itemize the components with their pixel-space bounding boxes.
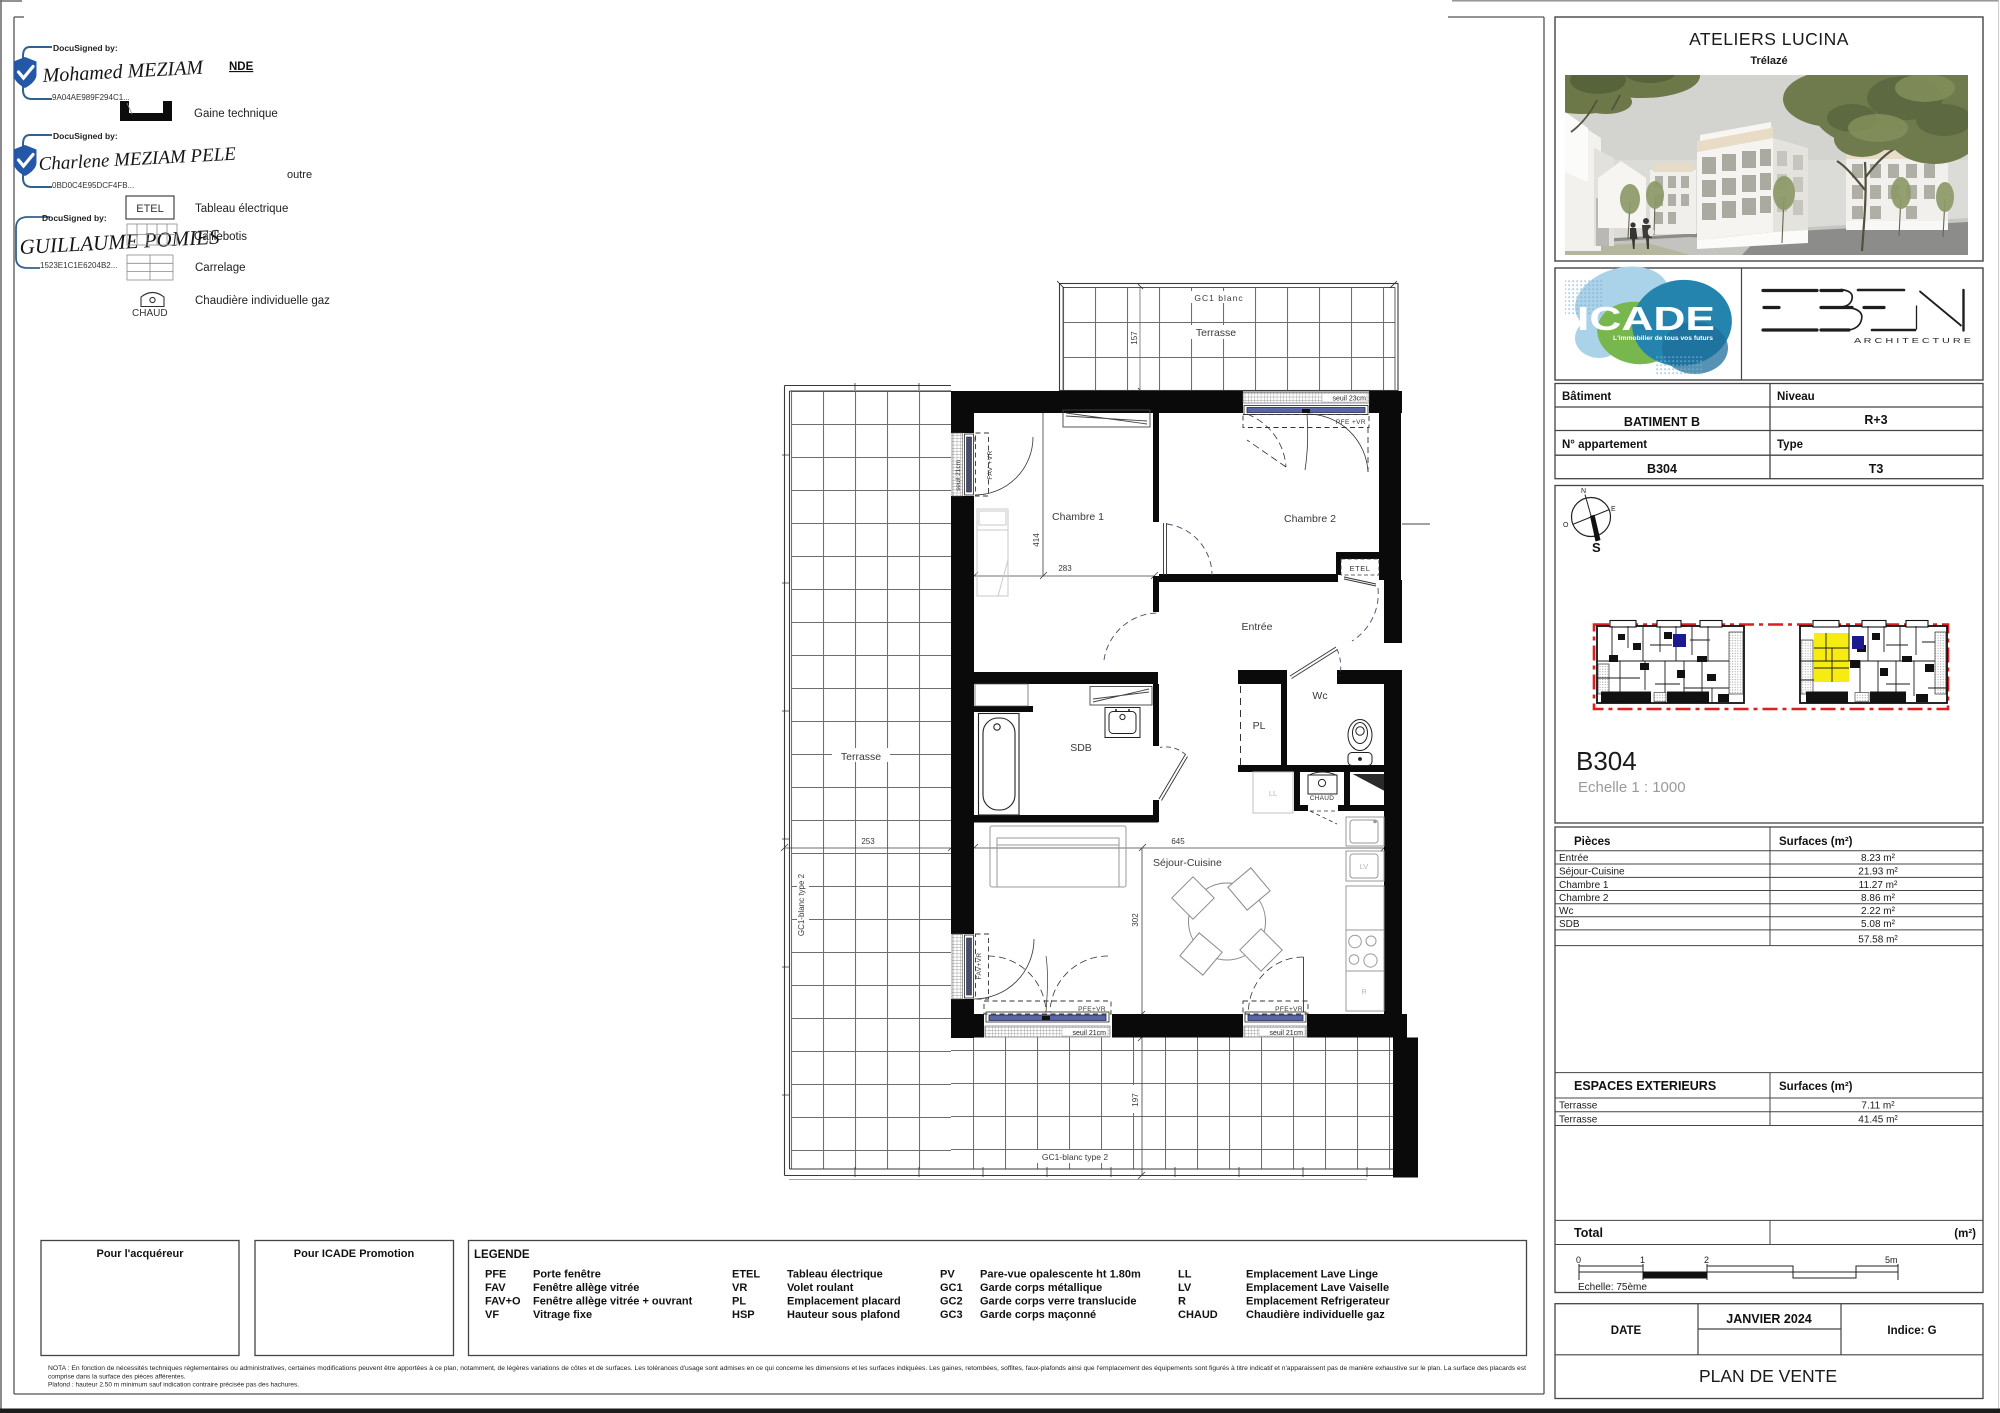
- svg-text:Séjour-Cuisine: Séjour-Cuisine: [1559, 867, 1625, 878]
- svg-text:Emplacement Refrigerateur: Emplacement Refrigerateur: [1246, 1296, 1390, 1308]
- svg-text:LV: LV: [1178, 1282, 1192, 1294]
- svg-text:DocuSigned by:: DocuSigned by:: [42, 213, 107, 223]
- svg-text:Terrasse: Terrasse: [1196, 327, 1236, 339]
- svg-text:ICADE: ICADE: [1577, 300, 1715, 337]
- svg-text:Entrée: Entrée: [1242, 621, 1273, 633]
- svg-text:Indice: G: Indice: G: [1887, 1325, 1936, 1337]
- svg-text:FAV +VR: FAV +VR: [987, 450, 994, 479]
- svg-text:PFE+VR: PFE+VR: [1078, 1006, 1106, 1013]
- svg-text:0BD0C4E95DCF4FB...: 0BD0C4E95DCF4FB...: [52, 181, 134, 190]
- svg-text:PV: PV: [940, 1269, 955, 1281]
- svg-text:8.86 m²: 8.86 m²: [1861, 893, 1896, 904]
- svg-text:DocuSigned by:: DocuSigned by:: [53, 43, 118, 53]
- svg-text:PFE +VR: PFE +VR: [1336, 419, 1366, 426]
- svg-text:LV: LV: [1360, 862, 1369, 871]
- svg-text:GC1: GC1: [940, 1282, 963, 1294]
- svg-text:R+3: R+3: [1864, 413, 1887, 427]
- svg-text:Trélazé: Trélazé: [1750, 55, 1787, 67]
- svg-text:DocuSigned by:: DocuSigned by:: [53, 131, 118, 141]
- svg-text:Pour l'acquéreur: Pour l'acquéreur: [97, 1248, 185, 1260]
- svg-text:PL: PL: [1253, 720, 1266, 732]
- svg-text:T3: T3: [1869, 462, 1884, 476]
- svg-text:Pour ICADE Promotion: Pour ICADE Promotion: [294, 1248, 415, 1260]
- svg-text:9A04AE989F294C1...: 9A04AE989F294C1...: [52, 93, 130, 102]
- svg-text:GC2: GC2: [940, 1296, 963, 1308]
- svg-text:ETEL: ETEL: [732, 1269, 760, 1281]
- svg-text:seuil 21cm: seuil 21cm: [1270, 1030, 1304, 1037]
- svg-text:GC1-blanc type 2: GC1-blanc type 2: [1042, 1152, 1108, 1162]
- svg-text:HSP: HSP: [732, 1309, 755, 1321]
- svg-text:Wc: Wc: [1559, 906, 1573, 917]
- svg-text:7.11 m²: 7.11 m²: [1861, 1101, 1895, 1112]
- svg-text:PL: PL: [732, 1296, 746, 1308]
- svg-text:Carrelage: Carrelage: [195, 262, 246, 274]
- svg-text:VR: VR: [732, 1282, 747, 1294]
- svg-text:JANVIER 2024: JANVIER 2024: [1726, 1312, 1812, 1326]
- svg-text:R: R: [1178, 1296, 1186, 1308]
- svg-text:414: 414: [1032, 533, 1041, 547]
- svg-text:41.45 m²: 41.45 m²: [1858, 1114, 1898, 1125]
- svg-text:BATIMENT B: BATIMENT B: [1624, 415, 1700, 429]
- svg-text:L'immobilier de tous vos futur: L'immobilier de tous vos futurs: [1613, 335, 1713, 342]
- svg-text:N: N: [1581, 488, 1586, 495]
- svg-text:Fenêtre allège vitrée: Fenêtre allège vitrée: [533, 1282, 639, 1294]
- svg-text:ESPACES EXTERIEURS: ESPACES EXTERIEURS: [1574, 1079, 1716, 1093]
- svg-text:FAV: FAV: [485, 1282, 506, 1294]
- svg-text:LEGENDE: LEGENDE: [474, 1249, 530, 1261]
- svg-text:PLAN DE VENTE: PLAN DE VENTE: [1699, 1366, 1837, 1386]
- svg-text:57.58 m²: 57.58 m²: [1858, 935, 1898, 946]
- svg-text:21.93 m²: 21.93 m²: [1858, 867, 1898, 878]
- svg-text:Tableau électrique: Tableau électrique: [787, 1269, 883, 1281]
- svg-text:5m: 5m: [1885, 1255, 1898, 1265]
- svg-text:Emplacement placard: Emplacement placard: [787, 1296, 901, 1308]
- svg-text:B304: B304: [1576, 746, 1637, 776]
- svg-text:11.27 m²: 11.27 m²: [1859, 880, 1898, 891]
- svg-text:N° appartement: N° appartement: [1562, 439, 1647, 451]
- svg-text:Vitrage fixe: Vitrage fixe: [533, 1309, 592, 1321]
- svg-text:Chambre 1: Chambre 1: [1052, 511, 1104, 523]
- svg-text:Wc: Wc: [1312, 690, 1327, 702]
- svg-text:CHAUD: CHAUD: [1178, 1309, 1218, 1321]
- svg-text:CHAUD: CHAUD: [132, 308, 168, 319]
- svg-text:PFE+VR: PFE+VR: [1275, 1006, 1303, 1013]
- svg-text:157: 157: [1130, 331, 1139, 345]
- svg-text:outre: outre: [287, 169, 312, 181]
- svg-text:Echelle 1 : 1000: Echelle 1 : 1000: [1578, 779, 1686, 796]
- svg-text:B304: B304: [1647, 462, 1677, 476]
- svg-text:SDB: SDB: [1559, 919, 1580, 930]
- svg-text:seuil 23cm: seuil 23cm: [1333, 396, 1367, 403]
- svg-text:Entrée: Entrée: [1559, 853, 1589, 864]
- svg-text:PFE: PFE: [485, 1269, 506, 1281]
- svg-text:(m²): (m²): [1954, 1228, 1976, 1240]
- svg-text:Terrasse: Terrasse: [1559, 1101, 1598, 1112]
- svg-text:Emplacement Lave Linge: Emplacement Lave Linge: [1246, 1269, 1378, 1281]
- svg-text:seuil 21cm: seuil 21cm: [1073, 1030, 1107, 1037]
- svg-text:Hauteur sous plafond: Hauteur sous plafond: [787, 1309, 900, 1321]
- svg-text:Terrasse: Terrasse: [1559, 1114, 1598, 1125]
- svg-text:2.22 m²: 2.22 m²: [1861, 906, 1896, 917]
- svg-text:Pièces: Pièces: [1574, 836, 1610, 848]
- svg-text:Surfaces (m²): Surfaces (m²): [1779, 836, 1853, 848]
- svg-text:Porte fenêtre: Porte fenêtre: [533, 1269, 601, 1281]
- svg-text:1: 1: [1640, 1255, 1645, 1265]
- svg-text:Chaudière individuelle gaz: Chaudière individuelle gaz: [195, 295, 330, 307]
- svg-text:197: 197: [1131, 1093, 1140, 1107]
- svg-text:302: 302: [1131, 913, 1140, 927]
- svg-text:8.23 m²: 8.23 m²: [1861, 853, 1896, 864]
- svg-text:283: 283: [1058, 564, 1072, 573]
- svg-text:ETEL: ETEL: [136, 203, 164, 215]
- svg-text:O: O: [1563, 522, 1569, 529]
- svg-text:GC1 blanc: GC1 blanc: [1194, 293, 1243, 303]
- svg-text:Chambre 2: Chambre 2: [1559, 893, 1609, 904]
- svg-text:Chaudière individuelle gaz: Chaudière individuelle gaz: [1246, 1309, 1385, 1321]
- svg-text:5.08 m²: 5.08 m²: [1861, 919, 1896, 930]
- svg-text:VF: VF: [485, 1309, 499, 1321]
- svg-text:Séjour-Cuisine: Séjour-Cuisine: [1153, 857, 1222, 869]
- svg-text:2: 2: [1704, 1255, 1709, 1265]
- svg-text:Tableau électrique: Tableau électrique: [195, 203, 288, 215]
- svg-text:DATE: DATE: [1611, 1325, 1642, 1337]
- svg-text:Caillebotis: Caillebotis: [194, 231, 247, 243]
- svg-text:Chambre 2: Chambre 2: [1284, 513, 1336, 525]
- svg-text:comprise dans la surface des p: comprise dans la surface des pièces affé…: [48, 1374, 186, 1381]
- svg-text:Plafond : hauteur 2.50 m mini: Plafond : hauteur 2.50 m minimum sauf in…: [48, 1382, 299, 1389]
- svg-text:S: S: [1592, 540, 1601, 555]
- svg-text:Chambre 1: Chambre 1: [1559, 880, 1609, 891]
- svg-text:645: 645: [1171, 837, 1185, 846]
- svg-text:E: E: [1611, 506, 1616, 513]
- svg-text:Gaine technique: Gaine technique: [194, 108, 278, 120]
- svg-text:Garde corps maçonné: Garde corps maçonné: [980, 1309, 1096, 1321]
- svg-text:Terrasse: Terrasse: [841, 751, 881, 763]
- svg-text:Emplacement Lave Vaiselle: Emplacement Lave Vaiselle: [1246, 1282, 1389, 1294]
- svg-text:Garde corps métallique: Garde corps métallique: [980, 1282, 1102, 1294]
- svg-text:FAV+O: FAV+O: [485, 1296, 521, 1308]
- svg-text:NOTA : En fonction de nécessit: NOTA : En fonction de nécessités techniq…: [48, 1365, 1526, 1372]
- svg-text:Bâtiment: Bâtiment: [1562, 391, 1611, 403]
- svg-text:253: 253: [861, 837, 875, 846]
- svg-text:GC3: GC3: [940, 1309, 963, 1321]
- svg-text:FAV+VR: FAV+VR: [976, 952, 983, 979]
- svg-text:A R C H I T E C T U R E: A R C H I T E C T U R E: [1854, 336, 1971, 345]
- svg-text:SDB: SDB: [1070, 742, 1092, 754]
- svg-text:CHAUD: CHAUD: [1310, 795, 1335, 802]
- svg-text:Echelle: 75ème: Echelle: 75ème: [1578, 1282, 1647, 1293]
- svg-text:R: R: [1361, 989, 1366, 996]
- svg-text:ATELIERS LUCINA: ATELIERS LUCINA: [1689, 29, 1849, 49]
- svg-text:Total: Total: [1574, 1226, 1603, 1240]
- svg-text:ETEL: ETEL: [1350, 564, 1371, 573]
- svg-text:GC1-blanc type 2: GC1-blanc type 2: [797, 873, 806, 936]
- svg-text:Surfaces (m²): Surfaces (m²): [1779, 1081, 1853, 1093]
- svg-text:Niveau: Niveau: [1777, 391, 1815, 403]
- svg-text:Garde corps verre translucide: Garde corps verre translucide: [980, 1296, 1137, 1308]
- svg-text:NDE: NDE: [229, 61, 254, 73]
- svg-text:LL: LL: [1178, 1269, 1192, 1281]
- svg-text:LL: LL: [1269, 789, 1277, 798]
- svg-text:0: 0: [1576, 1255, 1581, 1265]
- svg-text:1523E1C1E6204B2...: 1523E1C1E6204B2...: [40, 261, 117, 270]
- svg-text:Fenêtre allège vitrée + ouvran: Fenêtre allège vitrée + ouvrant: [533, 1296, 693, 1308]
- svg-text:Pare-vue opalescente ht 1.80m: Pare-vue opalescente ht 1.80m: [980, 1269, 1141, 1281]
- svg-text:seuil 21cm: seuil 21cm: [955, 460, 962, 491]
- svg-text:Volet roulant: Volet roulant: [787, 1282, 854, 1294]
- svg-text:Type: Type: [1777, 439, 1803, 451]
